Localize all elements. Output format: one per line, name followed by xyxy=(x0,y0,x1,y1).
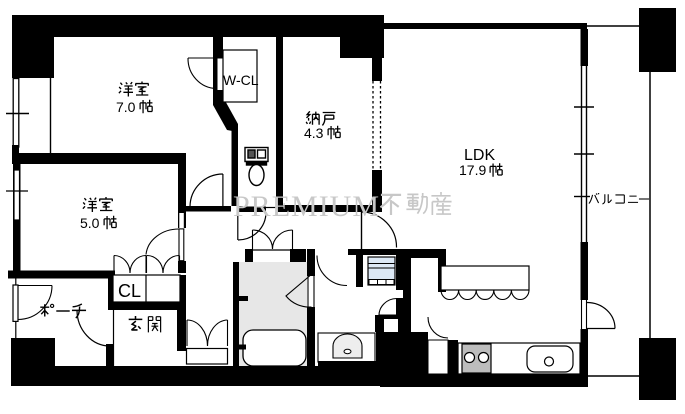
svg-text:4.3: 4.3 xyxy=(304,125,324,141)
svg-text:PREMIUM: PREMIUM xyxy=(233,190,380,223)
svg-text:CL: CL xyxy=(118,281,141,301)
svg-text:7.0: 7.0 xyxy=(116,99,136,115)
svg-text:17.9: 17.9 xyxy=(459,162,486,178)
svg-text:5.0: 5.0 xyxy=(80,215,100,231)
svg-text:W-CL: W-CL xyxy=(223,72,259,88)
